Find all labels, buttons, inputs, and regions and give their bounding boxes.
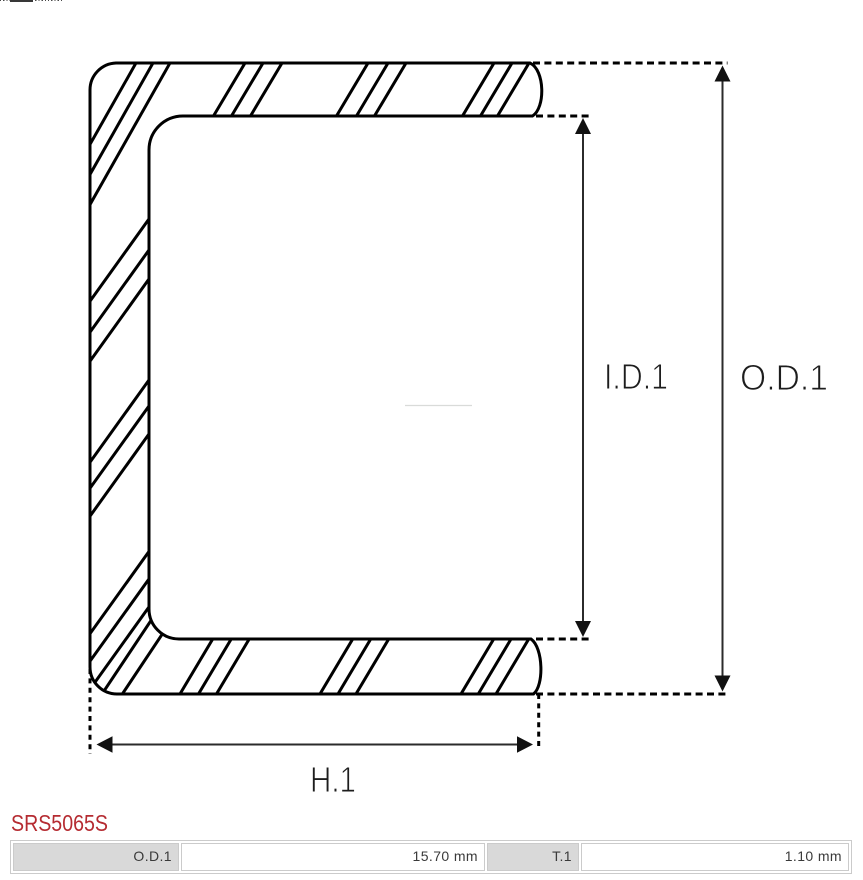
svg-text:O.D.1: O.D.1	[740, 357, 828, 398]
svg-text:I.D.1: I.D.1	[604, 356, 668, 397]
svg-text:H.1: H.1	[310, 759, 356, 800]
svg-text:SRS5065S: SRS5065S	[11, 810, 108, 836]
